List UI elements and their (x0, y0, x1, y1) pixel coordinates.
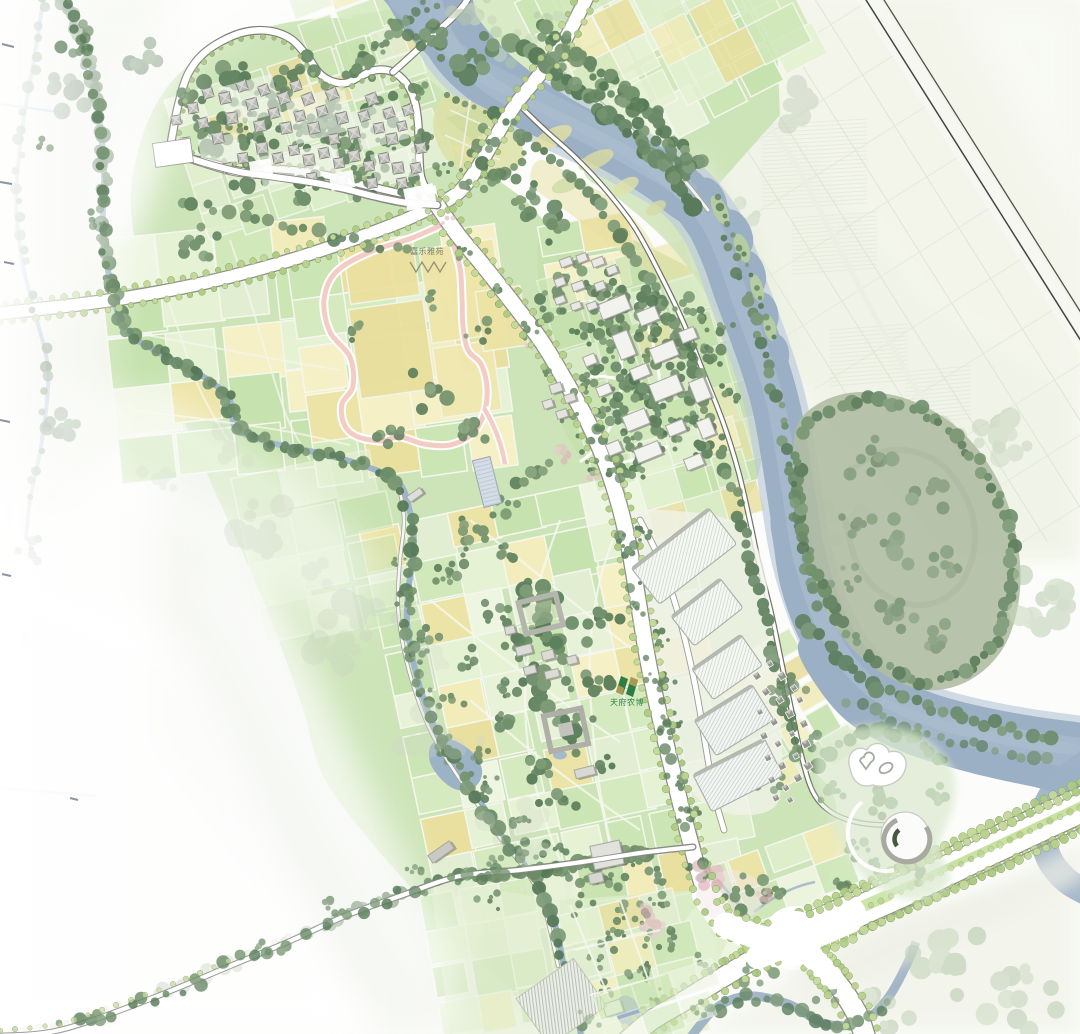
svg-text:嘉乐雅苑: 嘉乐雅苑 (410, 246, 444, 256)
svg-text:天府农博: 天府农博 (610, 697, 644, 707)
